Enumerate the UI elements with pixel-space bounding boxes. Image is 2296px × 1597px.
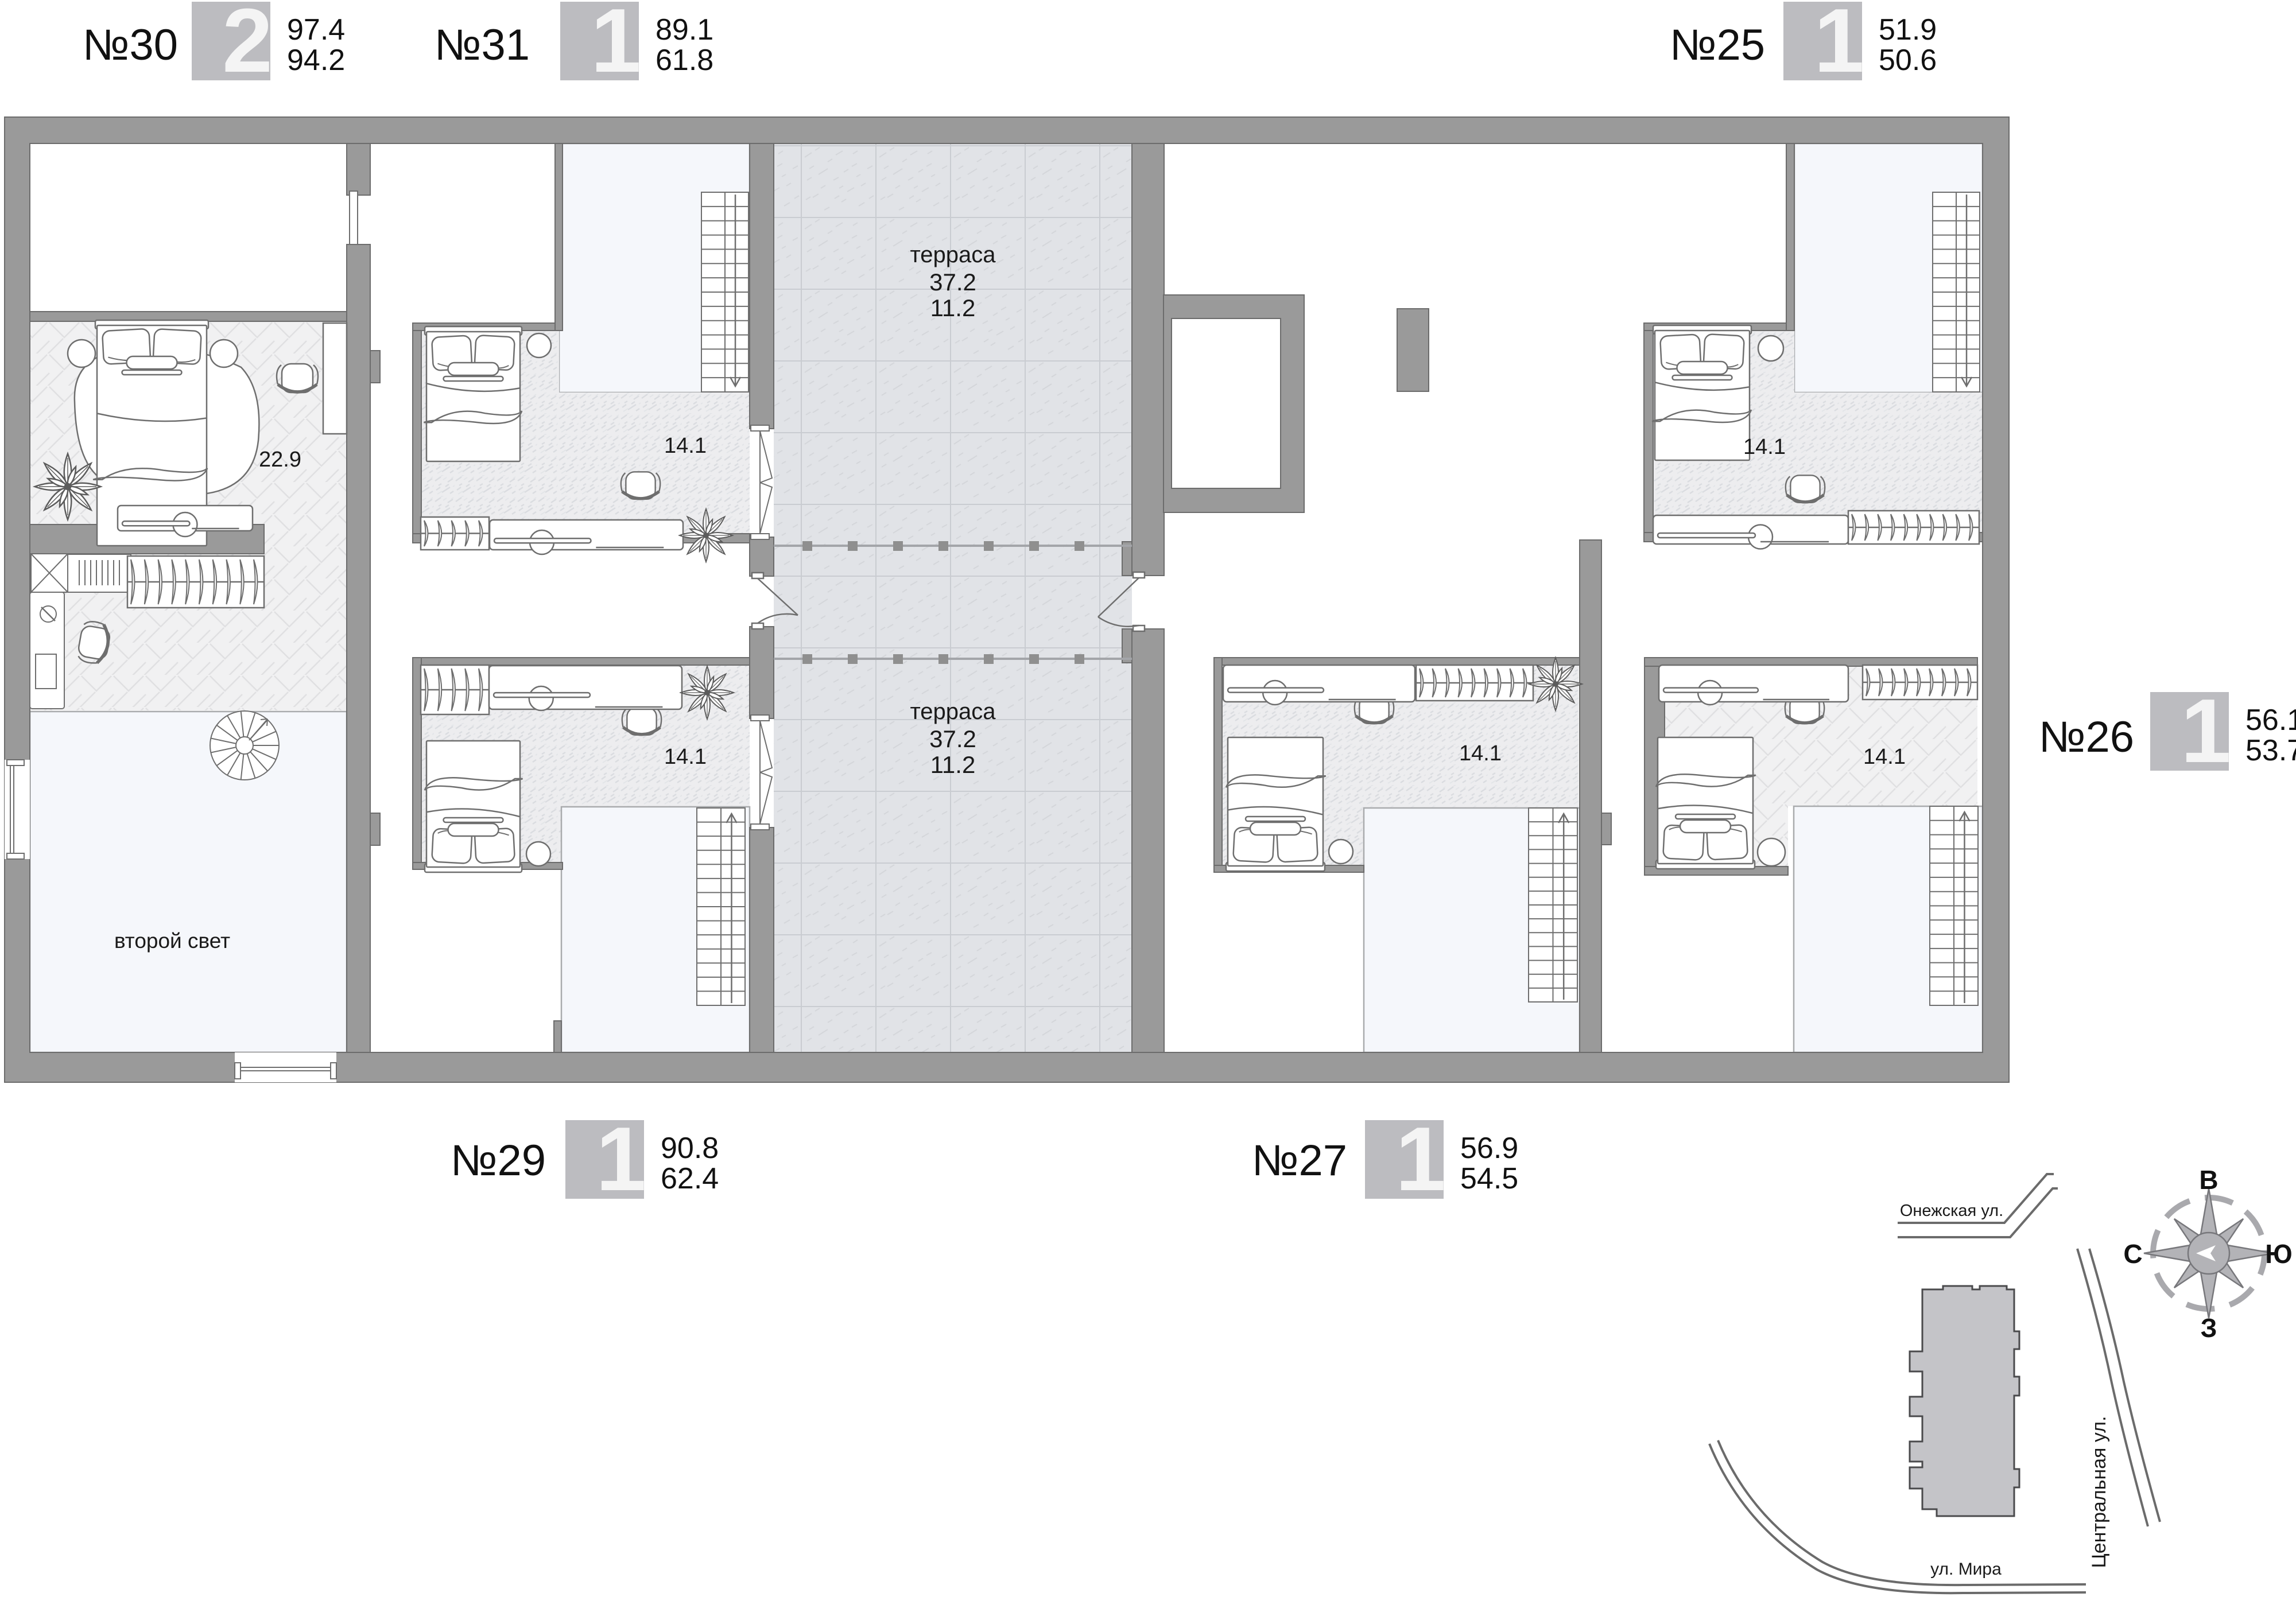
svg-text:89.1: 89.1 [656,13,713,46]
svg-text:2: 2 [222,0,273,91]
svg-text:54.5: 54.5 [1460,1162,1518,1195]
svg-text:90.8: 90.8 [661,1132,719,1165]
svg-text:22.9: 22.9 [259,448,301,472]
svg-text:второй свет: второй свет [114,929,230,953]
svg-text:14.1: 14.1 [1743,435,1786,459]
svg-text:50.6: 50.6 [1879,44,1937,77]
svg-text:Онежская ул.: Онежская ул. [1900,1202,2003,1220]
svg-text:Ю: Ю [2265,1239,2292,1269]
svg-text:С: С [2123,1239,2142,1269]
svg-text:14.1: 14.1 [1863,745,1906,769]
svg-text:В: В [2199,1165,2218,1195]
svg-text:№27: №27 [1252,1136,1347,1185]
svg-text:№29: №29 [451,1136,546,1185]
svg-text:56.1: 56.1 [2245,704,2296,737]
svg-text:11.2: 11.2 [930,294,976,321]
svg-text:1: 1 [1814,0,1864,91]
svg-text:З: З [2201,1313,2217,1343]
svg-text:62.4: 62.4 [661,1162,719,1195]
svg-text:1: 1 [2181,681,2231,782]
svg-text:37.2: 37.2 [929,269,976,296]
svg-text:53.7: 53.7 [2245,734,2296,767]
svg-text:56.9: 56.9 [1460,1132,1518,1165]
svg-text:№30: №30 [83,21,178,69]
svg-text:14.1: 14.1 [1459,741,1502,766]
svg-text:11.2: 11.2 [930,751,976,778]
svg-text:61.8: 61.8 [656,44,713,77]
svg-text:№31: №31 [435,21,530,69]
svg-text:Центральная ул.: Центральная ул. [2088,1416,2110,1568]
svg-text:№25: №25 [1670,21,1765,69]
svg-text:97.4: 97.4 [287,13,345,46]
svg-text:37.2: 37.2 [929,725,976,752]
svg-text:14.1: 14.1 [664,434,707,458]
svg-text:14.1: 14.1 [664,745,707,769]
svg-text:1: 1 [1395,1109,1446,1210]
svg-text:ул. Мира: ул. Мира [1930,1560,2002,1579]
svg-text:терраса: терраса [910,242,996,267]
svg-text:51.9: 51.9 [1879,13,1937,46]
svg-text:№26: №26 [2039,713,2134,761]
svg-text:94.2: 94.2 [287,44,345,77]
svg-text:1: 1 [596,1109,646,1210]
svg-text:1: 1 [591,0,641,91]
svg-text:терраса: терраса [910,699,996,724]
